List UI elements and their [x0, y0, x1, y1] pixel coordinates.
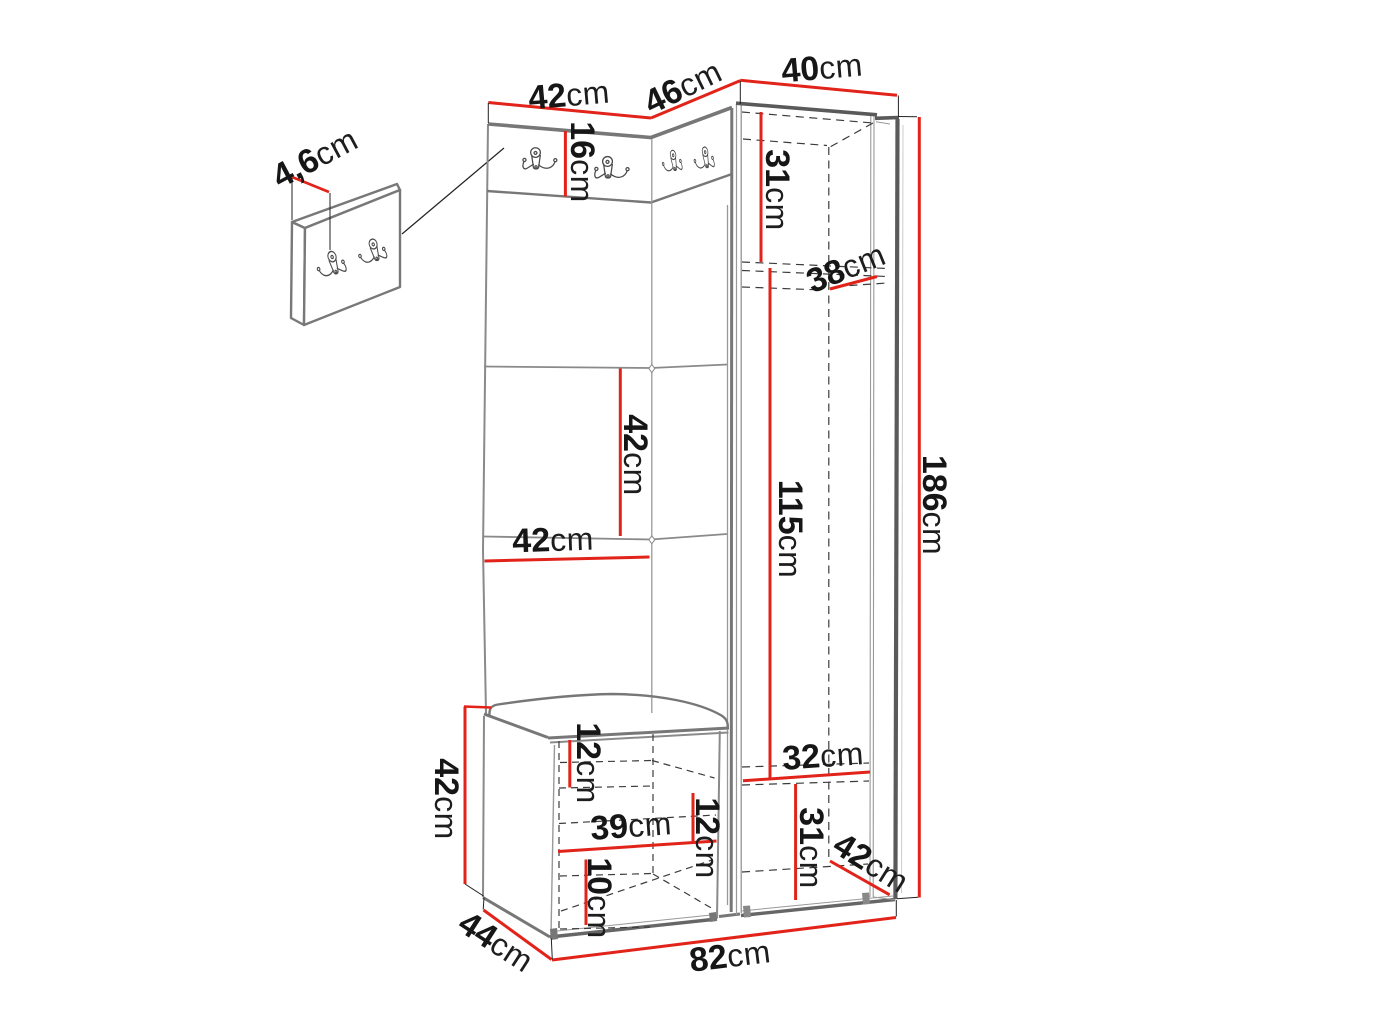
- svg-text:31cm: 31cm: [792, 807, 830, 888]
- svg-text:115cm: 115cm: [771, 480, 809, 579]
- svg-text:42cm: 42cm: [512, 520, 595, 561]
- svg-text:31cm: 31cm: [758, 149, 796, 230]
- svg-text:186cm: 186cm: [915, 455, 953, 555]
- svg-text:32cm: 32cm: [781, 734, 865, 778]
- svg-text:10cm: 10cm: [580, 857, 618, 938]
- svg-text:42cm: 42cm: [427, 758, 465, 839]
- svg-text:12cm: 12cm: [569, 722, 607, 803]
- svg-text:39cm: 39cm: [589, 804, 673, 848]
- svg-text:42cm: 42cm: [616, 414, 654, 495]
- svg-text:12cm: 12cm: [688, 797, 726, 878]
- svg-text:16cm: 16cm: [563, 121, 601, 202]
